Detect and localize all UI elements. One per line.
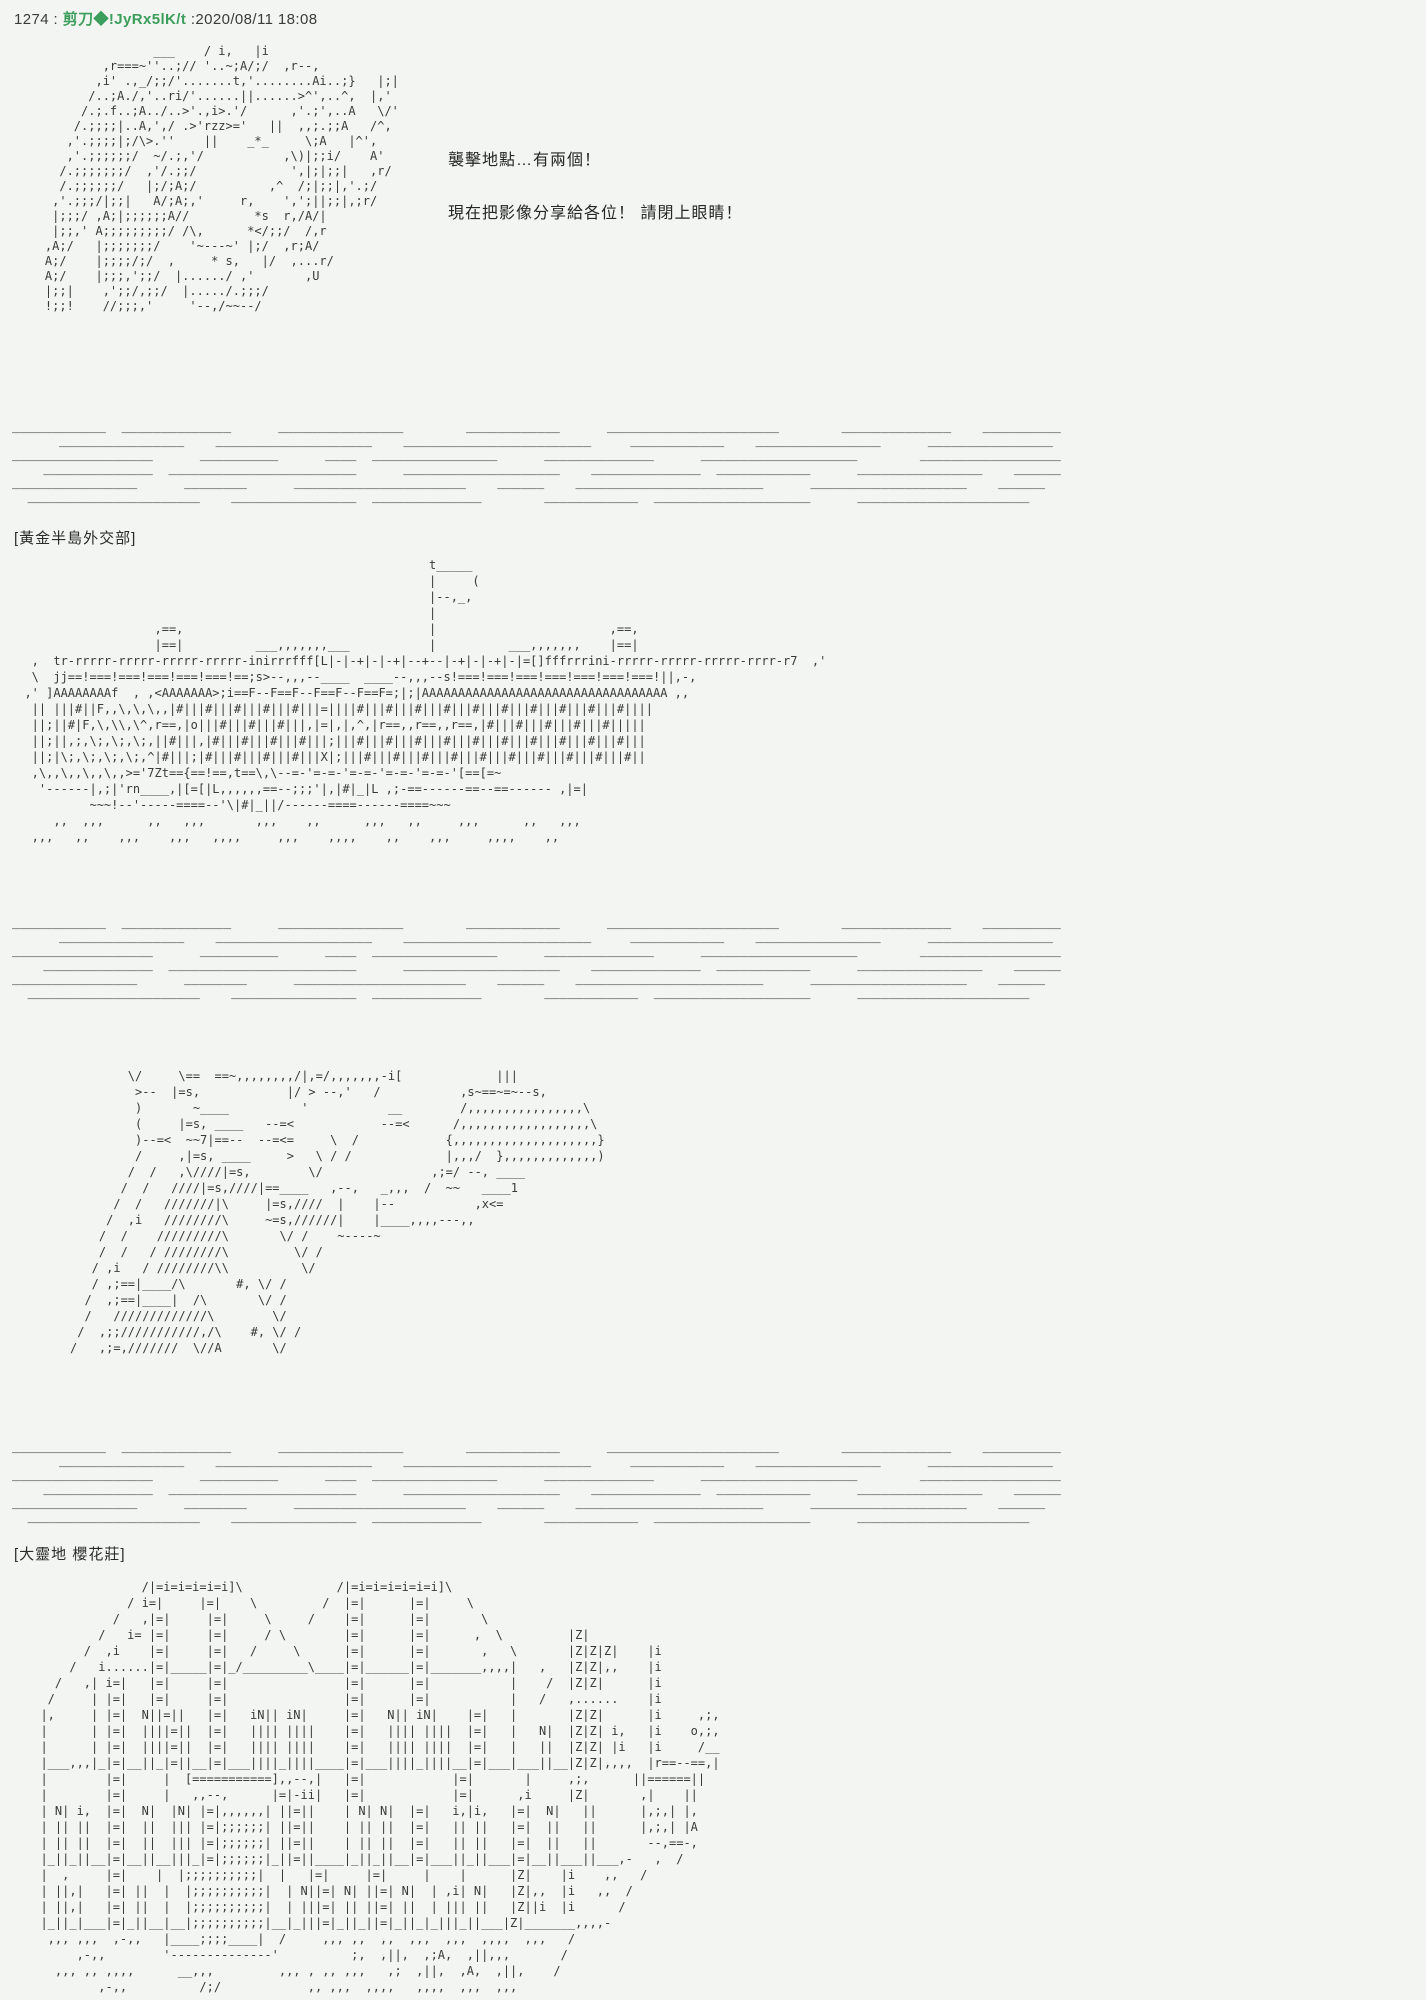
location-label-ministry: [黃金半島外交部] [14,527,136,548]
ascii-art-character-1: ___ / i, |i ,r===~''..;// '..~;A/;/ ,r--… [16,44,399,314]
ascii-art-ministry-building: t_____ | ( |--,_, | [10,557,826,845]
dialogue-line-2: 現在把影像分享給各位！ 請閉上眼睛！ [448,199,742,223]
ascii-art-character-2: \/ \== ==~,,,,,,,,/|,=/,,,,,,,-i[ ||| >-… [70,1068,605,1356]
post-number: 1274 [14,11,49,28]
ascii-art-sakura-sou-building: /|=i=i=i=i=i]\ /|=i=i=i=i=i=i]\ / i=| |=… [26,1579,720,1995]
scene-divider-2: ____________ ______________ ____________… [12,916,1061,1000]
scene-divider-3: ____________ ______________ ____________… [12,1440,1061,1524]
scene-divider-1: ____________ ______________ ____________… [12,420,1061,504]
post-header: 1274 : 剪刀◆!JyRx5lK/t :2020/08/11 18:08 [14,8,317,29]
dialogue-line-1: 襲擊地點…有兩個！ [448,146,601,170]
post-datetime: 2020/08/11 18:08 [195,11,317,28]
poster-name: 剪刀◆!JyRx5lK/t [63,11,187,28]
post-header-colon: : [49,11,63,28]
location-label-sakura-sou: [大靈地 櫻花莊] [14,1543,126,1564]
